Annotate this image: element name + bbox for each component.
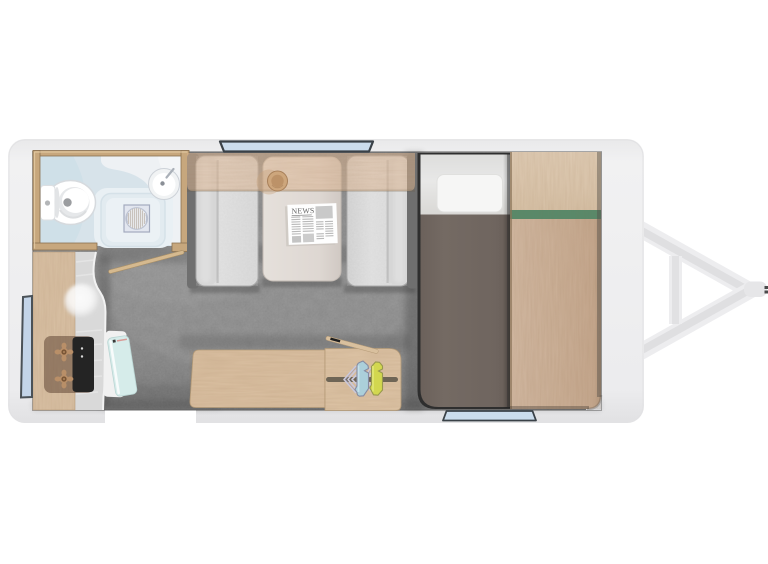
svg-text:NEWS: NEWS — [291, 206, 314, 216]
